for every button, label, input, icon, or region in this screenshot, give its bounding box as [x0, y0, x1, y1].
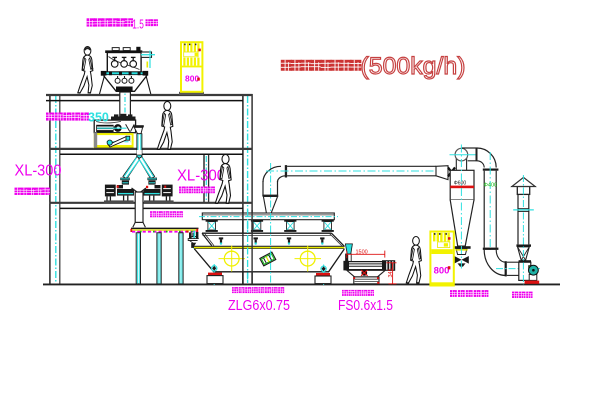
- svg-text:XL-300: XL-300: [15, 163, 62, 180]
- svg-text:345: 345: [388, 268, 394, 277]
- svg-text:ZLG6x0.75: ZLG6x0.75: [228, 298, 290, 314]
- svg-text:Φ600: Φ600: [454, 181, 467, 187]
- svg-text:Φ400: Φ400: [484, 183, 498, 189]
- svg-text:FS0.6x1.5: FS0.6x1.5: [338, 298, 393, 314]
- svg-text:(500kg/h): (500kg/h): [361, 53, 466, 80]
- svg-text:800: 800: [434, 266, 450, 277]
- svg-text:XL-300: XL-300: [177, 168, 225, 185]
- svg-text:1.5: 1.5: [132, 17, 144, 31]
- svg-text:350: 350: [88, 111, 109, 125]
- svg-text:1500: 1500: [356, 250, 368, 256]
